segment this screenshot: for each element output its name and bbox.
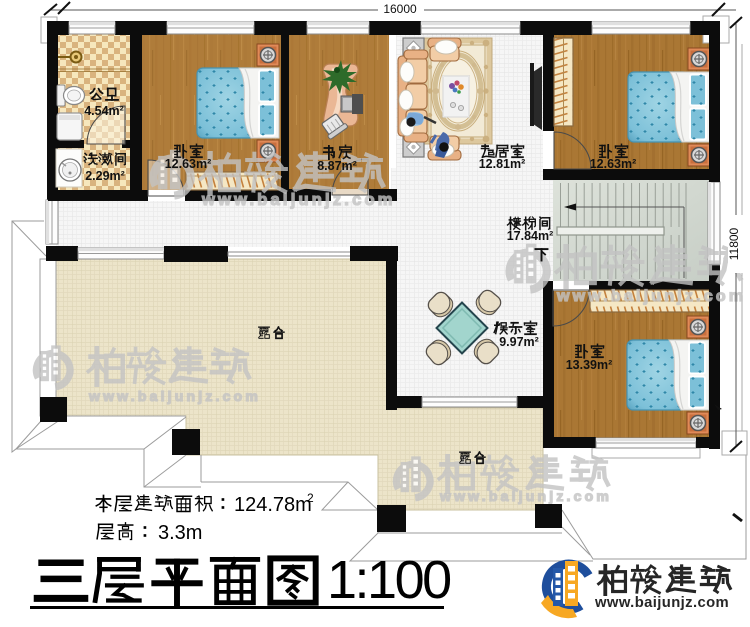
svg-text:www.baijunjz.com: www.baijunjz.com xyxy=(201,191,396,209)
svg-text:12.63m²: 12.63m² xyxy=(590,157,637,171)
svg-text:8.87m²: 8.87m² xyxy=(317,159,357,173)
svg-text:3.3m: 3.3m xyxy=(158,522,202,544)
svg-text:www.baijunjz.com: www.baijunjz.com xyxy=(439,488,612,504)
svg-text:2.29m²: 2.29m² xyxy=(85,169,125,183)
svg-text:www.baijunjz.com: www.baijunjz.com xyxy=(556,288,746,305)
svg-text:www.baijunjz.com: www.baijunjz.com xyxy=(88,388,261,404)
svg-text:124.78m: 124.78m xyxy=(234,494,312,516)
svg-text:4.54m²: 4.54m² xyxy=(84,104,124,118)
svg-text:www.baijunjz.com: www.baijunjz.com xyxy=(594,595,729,611)
svg-text:13.39m²: 13.39m² xyxy=(566,358,613,372)
svg-text:12.81m²: 12.81m² xyxy=(479,157,526,171)
svg-text:17.84m²: 17.84m² xyxy=(507,229,554,243)
svg-text:11800: 11800 xyxy=(727,227,741,260)
svg-text:9.97m²: 9.97m² xyxy=(499,335,539,349)
svg-text:12.63m²: 12.63m² xyxy=(165,157,212,171)
svg-text:16000: 16000 xyxy=(383,2,417,16)
svg-text:1:100: 1:100 xyxy=(327,550,450,610)
svg-text:2: 2 xyxy=(307,491,314,505)
